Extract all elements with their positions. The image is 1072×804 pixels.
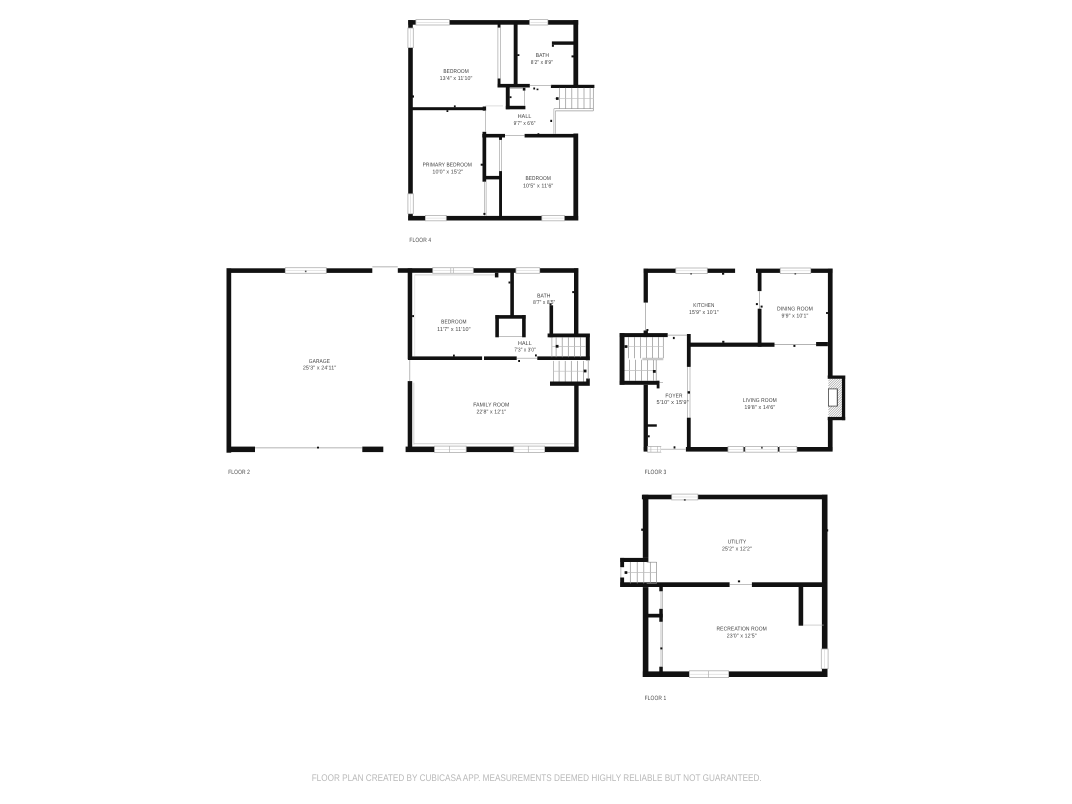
svg-text:BATH: BATH	[536, 53, 549, 59]
svg-text:FLOOR 1: FLOOR 1	[645, 695, 667, 702]
svg-text:10'5" x 11'6": 10'5" x 11'6"	[523, 183, 554, 189]
svg-text:KITCHEN: KITCHEN	[693, 303, 714, 309]
svg-text:FOYER: FOYER	[665, 394, 682, 400]
svg-text:HALL: HALL	[518, 114, 532, 120]
svg-text:HALL: HALL	[518, 341, 532, 347]
svg-text:FLOOR PLAN CREATED BY CUBICASA: FLOOR PLAN CREATED BY CUBICASA APP. MEAS…	[312, 773, 762, 784]
svg-text:BEDROOM: BEDROOM	[441, 320, 467, 326]
svg-text:25'3" x 24'11": 25'3" x 24'11"	[303, 366, 337, 372]
svg-text:23'0" x 12'5": 23'0" x 12'5"	[727, 633, 757, 639]
svg-text:FLOOR 3: FLOOR 3	[645, 469, 667, 476]
svg-text:LIVING ROOM: LIVING ROOM	[743, 398, 777, 404]
svg-text:11'7" x 11'10": 11'7" x 11'10"	[437, 327, 471, 333]
svg-text:5'10" x 15'9": 5'10" x 15'9"	[657, 400, 689, 406]
svg-text:8'2" x 8'9": 8'2" x 8'9"	[531, 60, 553, 66]
svg-text:BEDROOM: BEDROOM	[525, 176, 551, 182]
svg-text:8'7" x 8'5": 8'7" x 8'5"	[533, 300, 555, 306]
svg-text:BEDROOM: BEDROOM	[443, 69, 469, 75]
svg-text:22'8" x 12'1": 22'8" x 12'1"	[476, 409, 506, 415]
svg-text:19'8" x 14'6": 19'8" x 14'6"	[744, 405, 775, 411]
svg-text:FAMILY ROOM: FAMILY ROOM	[473, 402, 509, 408]
svg-text:13'4" x 11'10": 13'4" x 11'10"	[440, 76, 473, 82]
svg-text:RECREATION ROOM: RECREATION ROOM	[717, 626, 768, 632]
svg-text:9'7" x 6'6": 9'7" x 6'6"	[514, 121, 536, 127]
svg-text:DINING ROOM: DINING ROOM	[777, 306, 813, 312]
svg-text:PRIMARY BEDROOM: PRIMARY BEDROOM	[423, 162, 473, 168]
svg-text:15'9" x 10'1": 15'9" x 10'1"	[689, 310, 719, 316]
svg-text:GARAGE: GARAGE	[309, 359, 330, 365]
svg-text:UTILITY: UTILITY	[728, 540, 747, 546]
svg-text:BATH: BATH	[537, 294, 550, 300]
svg-text:25'2" x 12'2": 25'2" x 12'2"	[722, 547, 752, 553]
svg-text:FLOOR 4: FLOOR 4	[409, 237, 431, 244]
svg-text:FLOOR 2: FLOOR 2	[228, 469, 250, 476]
svg-text:10'0" x 15'2": 10'0" x 15'2"	[432, 169, 463, 175]
svg-text:9'9" x 10'1": 9'9" x 10'1"	[782, 314, 809, 320]
svg-text:7'3" x 3'0": 7'3" x 3'0"	[514, 348, 536, 354]
